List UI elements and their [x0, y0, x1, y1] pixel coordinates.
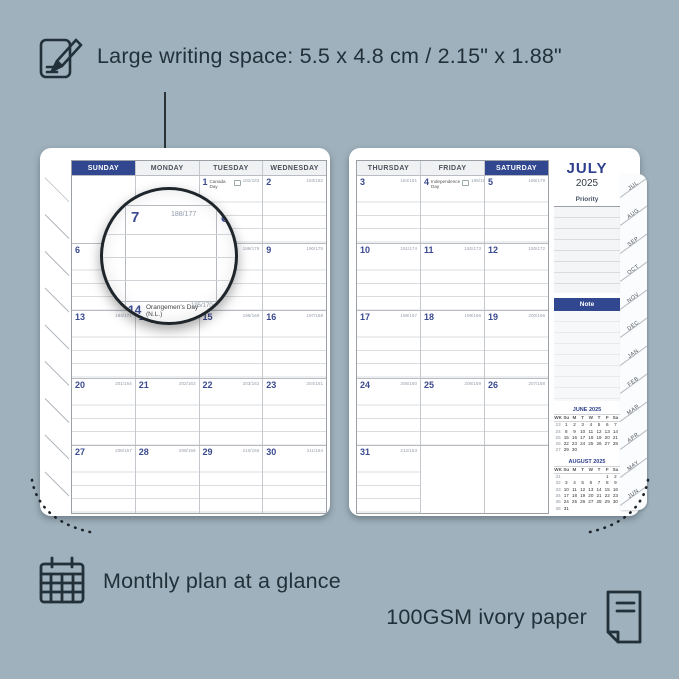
perforation-dots-left [26, 476, 102, 538]
day-counter: 197/168 [306, 313, 323, 319]
day-counter: 189/176 [243, 246, 260, 252]
day-cell-header: 21202/163 [136, 379, 199, 390]
day-cell-header: 20201/164 [72, 379, 135, 390]
paper-annotation: 100GSM ivory paper [386, 590, 645, 644]
day-counter: 201/164 [115, 381, 132, 387]
day-cell: 28209/156 [135, 446, 199, 513]
cell-ruled-lines [263, 392, 326, 446]
month-tab-mar: MAR [620, 398, 647, 426]
calendar-week-row: 31212/153 [357, 445, 548, 513]
day-number: 24 [360, 381, 370, 390]
tab-label: NOV [621, 288, 646, 309]
cell-ruled-lines [421, 324, 484, 378]
day-cell: 17198/167 [357, 311, 420, 378]
cell-ruled-lines [485, 189, 548, 243]
month-tab-jan: JAN [620, 342, 647, 370]
cell-ruled-lines [357, 459, 420, 513]
year-title: 2025 [554, 178, 620, 189]
day-number: 28 [139, 448, 149, 457]
day-cell: 31212/153 [357, 446, 420, 513]
priority-ruled-lines [554, 207, 620, 293]
mini-calendar-dow: Su [562, 466, 570, 474]
month-tab-aug: AUG [620, 202, 647, 230]
weekday-header: WEDNESDAY [262, 161, 326, 175]
mini-calendar-week-row: 272930 [554, 447, 620, 453]
magnified-holiday-region: (N.L.) [146, 311, 162, 318]
day-cell-header: 25206/159 [421, 379, 484, 390]
magnified-cell-border [125, 204, 126, 322]
day-cell: 29210/155 [199, 446, 263, 513]
day-cell-header: 5186/179 [485, 176, 548, 187]
day-cell: 5186/179 [484, 176, 548, 243]
month-title: JULY [554, 160, 620, 177]
day-cell: 9190/175 [262, 244, 326, 311]
tab-label: APR [621, 428, 646, 449]
cell-ruled-lines [357, 257, 420, 311]
day-counter: 210/155 [243, 448, 260, 454]
day-cell: 12193/172 [484, 244, 548, 311]
month-tab-nov: NOV [620, 286, 647, 314]
day-cell: 25206/159 [420, 379, 484, 446]
tab-label: AUG [621, 204, 646, 225]
day-counter: 203/162 [243, 381, 260, 387]
cell-ruled-lines [136, 324, 199, 378]
mini-calendar-dow: M [570, 466, 578, 474]
paper-text: 100GSM ivory paper [386, 605, 587, 630]
day-cell: 2183/182 [262, 176, 326, 243]
mini-calendar-dow: Sa [611, 466, 619, 474]
mini-calendar-dow: WK [554, 466, 562, 474]
day-cell-header: 1Canada Day182/183 [200, 176, 263, 189]
day-cell-header: 24205/160 [357, 379, 420, 390]
magnified-bottom-counter: 195/170 [191, 303, 213, 309]
mini-calendar-title: AUGUST 2025 [554, 457, 620, 466]
day-cell: 4Independence Day185/180 [420, 176, 484, 243]
day-cell: 16197/168 [262, 311, 326, 378]
day-counter: 182/183 [243, 178, 260, 184]
day-number: 27 [75, 448, 85, 457]
calendar-week-row: 13194/17114Orangemen's Day (N.L.)195/170… [72, 310, 326, 378]
month-tab-dec: DEC [620, 314, 647, 342]
day-number: 2 [266, 178, 271, 187]
mini-calendar-dow: W [587, 414, 595, 422]
day-cell-header: 9190/175 [263, 244, 326, 255]
weekday-header-row: THURSDAYFRIDAYSATURDAY [357, 161, 548, 175]
mini-calendar-title: JUNE 2025 [554, 405, 620, 414]
day-cell: 21202/163 [135, 379, 199, 446]
day-cell-header: 12193/172 [485, 244, 548, 255]
day-cell: 22203/162 [199, 379, 263, 446]
mini-calendar-dow: WK [554, 414, 562, 422]
mini-day-number: 30 [570, 447, 578, 453]
day-cell-header: 30211/154 [263, 446, 326, 457]
mini-calendar-dow: T [579, 414, 587, 422]
sidebar: JULY 2025 Priority Note JUNE 2025WKSuMTW… [554, 160, 620, 515]
day-cell: 19200/165 [484, 311, 548, 378]
day-number: 25 [424, 381, 434, 390]
day-number: 23 [266, 381, 276, 390]
day-cell-header: 18199/166 [421, 311, 484, 322]
cell-ruled-lines [136, 459, 199, 513]
tab-label: JAN [621, 344, 646, 365]
mini-day-number [587, 447, 595, 453]
mini-calendar-dow: F [603, 414, 611, 422]
cell-ruled-lines [485, 257, 548, 311]
day-cell: 10191/174 [357, 244, 420, 311]
day-counter: 184/181 [400, 178, 417, 184]
cell-ruled-lines [263, 459, 326, 513]
day-counter: 190/175 [306, 246, 323, 252]
mini-day-number [595, 447, 603, 453]
cell-ruled-lines [357, 392, 420, 446]
planner-product-image: Large writing space: 5.5 x 4.8 cm / 2.15… [0, 0, 679, 679]
holiday-label: Canada Day [210, 179, 232, 189]
calendar-week-row: 27208/15728209/15629210/15530211/154 [72, 445, 326, 513]
month-tab-jul: JUL [620, 174, 647, 202]
day-number: 29 [203, 448, 213, 457]
cell-ruled-lines [485, 392, 548, 446]
monthly-plan-text: Monthly plan at a glance [103, 569, 341, 594]
day-cell-header: 28209/156 [136, 446, 199, 457]
magnified-rule [103, 257, 235, 258]
cell-ruled-lines [263, 324, 326, 378]
day-cell-header: 2183/182 [263, 176, 326, 187]
day-number: 21 [139, 381, 149, 390]
weekday-header: MONDAY [135, 161, 199, 175]
cell-ruled-lines [357, 189, 420, 243]
day-counter: 200/165 [528, 313, 545, 319]
paper-sheet-icon [601, 590, 645, 644]
day-counter: 208/157 [115, 448, 132, 454]
day-cell: 26207/158 [484, 379, 548, 446]
calendar-week-row: 3184/1814Independence Day185/1805186/179 [357, 175, 548, 243]
note-label: Note [554, 298, 620, 311]
day-number: 16 [266, 313, 276, 322]
day-counter: 196/169 [243, 313, 260, 319]
day-cell-header: 31212/153 [357, 446, 420, 457]
mini-calendar-dow: T [595, 466, 603, 474]
cell-ruled-lines [200, 459, 263, 513]
day-cell: 11192/173 [420, 244, 484, 311]
day-counter: 205/160 [400, 381, 417, 387]
day-counter: 206/159 [464, 381, 481, 387]
magnified-bottom-day: 14 [128, 303, 141, 317]
magnified-cell-border [103, 301, 235, 302]
tab-label: JUL [621, 176, 646, 197]
day-number: 18 [424, 313, 434, 322]
cell-ruled-lines [263, 257, 326, 311]
cell-ruled-lines [421, 257, 484, 311]
mini-calendar-dow: W [587, 466, 595, 474]
mini-calendar-dow: M [570, 414, 578, 422]
day-cell-header: 4Independence Day185/180 [421, 176, 484, 189]
day-number: 30 [266, 448, 276, 457]
calendar-week-row: 10191/17411192/17312193/172 [357, 243, 548, 311]
day-number: 31 [360, 448, 370, 457]
mini-day-number [603, 447, 611, 453]
cell-ruled-lines [357, 324, 420, 378]
mini-calendar-dow: Su [562, 414, 570, 422]
day-counter: 198/167 [400, 313, 417, 319]
day-cell-header: 11192/173 [421, 244, 484, 255]
calendar-week-row: 20201/16421202/16322203/16223204/161 [72, 378, 326, 446]
holiday-label: Independence Day [431, 179, 460, 189]
perforation-dots-right [578, 476, 654, 538]
day-counter: 186/179 [528, 178, 545, 184]
day-number: 6 [75, 246, 80, 255]
magnified-rule [103, 234, 235, 235]
planner-right-page: THURSDAYFRIDAYSATURDAY3184/1814Independe… [349, 148, 640, 516]
day-cell: 15196/169 [199, 311, 263, 378]
weekday-header-row: SUNDAYMONDAYTUESDAYWEDNESDAY [72, 161, 326, 175]
cell-ruled-lines [263, 189, 326, 243]
cell-ruled-lines [136, 392, 199, 446]
left-margin-hatching [45, 174, 69, 508]
day-cell-header: 15196/169 [200, 311, 263, 322]
day-cell-header: 3184/181 [357, 176, 420, 187]
weekday-header: SUNDAY [72, 161, 135, 175]
day-number: 11 [424, 246, 434, 255]
day-cell-header: 29210/155 [200, 446, 263, 457]
magnified-rule [103, 280, 235, 281]
writing-space-text: Large writing space: 5.5 x 4.8 cm / 2.15… [97, 44, 562, 69]
day-cell-header: 23204/161 [263, 379, 326, 390]
day-number: 17 [360, 313, 370, 322]
weekday-header: THURSDAY [357, 161, 420, 175]
monthly-plan-annotation: Monthly plan at a glance [38, 556, 341, 606]
month-tab-oct: OCT [620, 258, 647, 286]
day-counter: 209/156 [179, 448, 196, 454]
month-tab-apr: APR [620, 426, 647, 454]
weekday-header: FRIDAY [420, 161, 484, 175]
magnified-cell-border [216, 204, 217, 322]
day-cell-header: 19200/165 [485, 311, 548, 322]
right-calendar-grid: THURSDAYFRIDAYSATURDAY3184/1814Independe… [356, 160, 549, 514]
day-number: 3 [360, 178, 365, 187]
month-tabs: JULAUGSEPOCTNOVDECJANFEBMARAPRMAYJUN [620, 174, 647, 510]
day-cell-header: 17198/167 [357, 311, 420, 322]
day-counter: 211/154 [307, 448, 323, 454]
day-cell: 30211/154 [262, 446, 326, 513]
month-tab-sep: SEP [620, 230, 647, 258]
notepad-pencil-icon [38, 32, 84, 80]
day-cell: 20201/164 [72, 379, 135, 446]
mini-week-number: 36 [554, 506, 562, 512]
day-number: 20 [75, 381, 85, 390]
cell-ruled-lines [200, 392, 263, 446]
day-number: 1 [203, 178, 208, 187]
day-cell: 23204/161 [262, 379, 326, 446]
tab-label: OCT [621, 260, 646, 281]
magnified-day-number: 7 [131, 209, 139, 226]
mini-calendar-dow-row: WKSuMTWTFSa [554, 466, 620, 474]
day-number: 4 [424, 178, 429, 187]
tab-label: MAR [621, 400, 646, 421]
mini-day-number [579, 447, 587, 453]
day-counter: 212/153 [400, 448, 417, 454]
tab-label: FEB [621, 372, 646, 393]
month-tab-feb: FEB [620, 370, 647, 398]
day-number: 13 [75, 313, 85, 322]
holiday-flag-icon [234, 180, 241, 186]
mini-day-number: 31 [562, 506, 570, 512]
mini-calendar-dow: F [603, 466, 611, 474]
day-number: 12 [488, 246, 498, 255]
day-cell: 3184/181 [357, 176, 420, 243]
cell-ruled-lines [72, 392, 135, 446]
empty-day-cell [484, 446, 548, 513]
day-number: 19 [488, 313, 498, 322]
weekday-header: TUESDAY [199, 161, 263, 175]
day-cell-header: 10191/174 [357, 244, 420, 255]
day-counter: 202/163 [179, 381, 196, 387]
magnified-day-counter: 188/177 [171, 211, 196, 218]
day-number: 5 [488, 178, 493, 187]
calendar-grid-icon [38, 556, 86, 606]
day-counter: 204/161 [306, 381, 323, 387]
day-cell-header: 27208/157 [72, 446, 135, 457]
day-number: 26 [488, 381, 498, 390]
mini-calendar-dow: Sa [611, 414, 619, 422]
cell-ruled-lines [421, 392, 484, 446]
day-counter: 191/174 [400, 246, 417, 252]
mini-day-number: 29 [562, 447, 570, 453]
weekday-header: SATURDAY [484, 161, 548, 175]
tab-label: MAY [621, 456, 646, 477]
day-counter: 207/158 [528, 381, 545, 387]
mini-calendar-dow-row: WKSuMTWTFSa [554, 414, 620, 422]
holiday-flag-icon [462, 180, 469, 186]
mini-calendar: JUNE 2025WKSuMTWTFSa23123456724891011121… [554, 405, 620, 454]
magnified-adjacent-day: 8 [221, 209, 229, 226]
day-cell-header: 22203/162 [200, 379, 263, 390]
note-ruled-lines [554, 311, 620, 401]
magnified-cell-border [103, 205, 235, 206]
calendar-week-row: 24205/16025206/15926207/158 [357, 378, 548, 446]
cell-ruled-lines [485, 324, 548, 378]
day-counter: 183/182 [306, 178, 323, 184]
day-cell: 24205/160 [357, 379, 420, 446]
cell-ruled-lines [72, 324, 135, 378]
day-cell: 18199/166 [420, 311, 484, 378]
day-cell-header: 16197/168 [263, 311, 326, 322]
mini-day-number [611, 447, 619, 453]
priority-label: Priority [554, 196, 620, 207]
cell-ruled-lines [200, 324, 263, 378]
day-counter: 193/172 [528, 246, 545, 252]
tab-label: SEP [621, 232, 646, 253]
day-number: 9 [266, 246, 271, 255]
mini-week-number: 27 [554, 447, 562, 453]
day-counter: 199/166 [464, 313, 481, 319]
calendar-week-row: 17198/16718199/16619200/165 [357, 310, 548, 378]
writing-space-annotation: Large writing space: 5.5 x 4.8 cm / 2.15… [38, 32, 562, 80]
magnifier-circle: 7 188/177 8 14 Orangemen's Day (N.L.) 19… [100, 187, 238, 325]
mini-calendar-dow: T [595, 414, 603, 422]
day-number: 22 [203, 381, 213, 390]
cell-ruled-lines [421, 189, 484, 243]
day-cell-header: 26207/158 [485, 379, 548, 390]
tab-label: DEC [621, 316, 646, 337]
day-number: 10 [360, 246, 370, 255]
mini-calendar-dow: T [579, 466, 587, 474]
day-counter: 192/173 [464, 246, 481, 252]
empty-day-cell [420, 446, 484, 513]
